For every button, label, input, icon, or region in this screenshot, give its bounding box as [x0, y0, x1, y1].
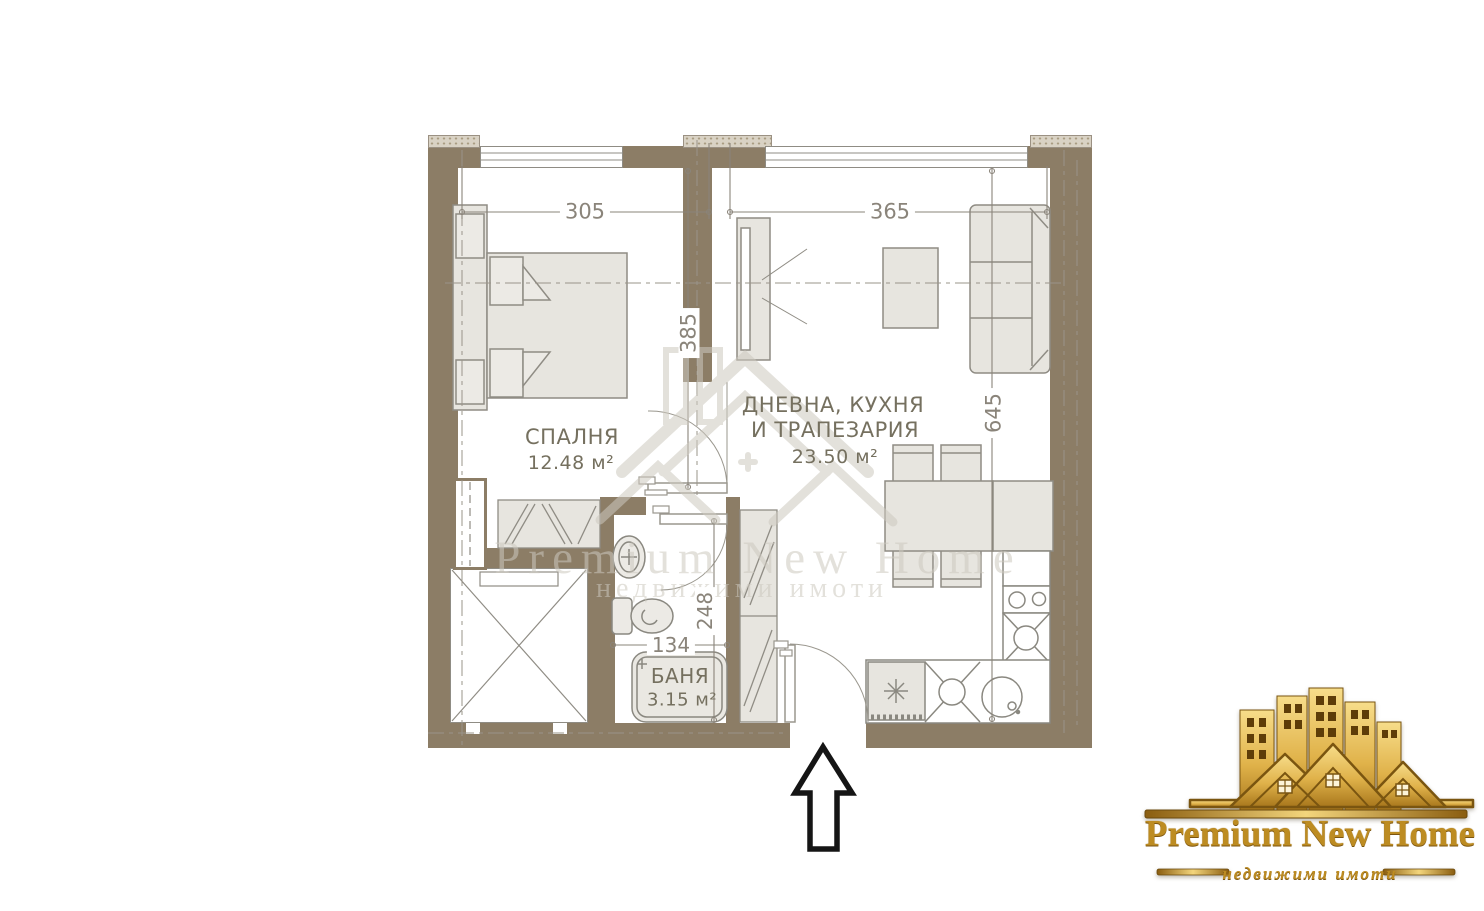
chair: [941, 445, 981, 483]
pillow: [490, 257, 523, 305]
entrance-arrow-icon: [795, 747, 852, 849]
bed: [453, 205, 627, 410]
door-bathroom: [653, 506, 727, 590]
nightstand: [456, 214, 484, 258]
chair: [893, 445, 933, 483]
nightstand: [456, 360, 484, 404]
toilet: [631, 599, 673, 633]
sofa: [970, 205, 1050, 373]
chair: [941, 549, 981, 587]
door-entrance: [774, 641, 868, 722]
chair: [893, 549, 933, 587]
agency-logo: Premium New Home недвижими имоти: [1135, 682, 1484, 904]
bathroom-fixtures: [612, 536, 727, 722]
stove: [1003, 586, 1050, 613]
floor-plan-page: Premium New Home недвижими имоти СПАЛНЯ …: [0, 0, 1484, 911]
door-bedroom: [639, 382, 727, 495]
window-glazing: [480, 153, 1028, 160]
coffee-table: [883, 248, 938, 328]
tv: [737, 218, 807, 360]
kitchen-bottom: [866, 660, 1050, 723]
kitchen-counter: [993, 481, 1053, 551]
logo-subtitle: недвижими имоти: [1222, 864, 1397, 884]
logo-title: Premium New Home: [1145, 813, 1475, 856]
bathtub: [632, 652, 727, 722]
dining-table: [885, 481, 993, 551]
toilet-tank: [612, 598, 632, 634]
pillow: [490, 349, 523, 397]
wardrobe: [498, 500, 600, 548]
wardrobe-hall: [740, 510, 777, 722]
